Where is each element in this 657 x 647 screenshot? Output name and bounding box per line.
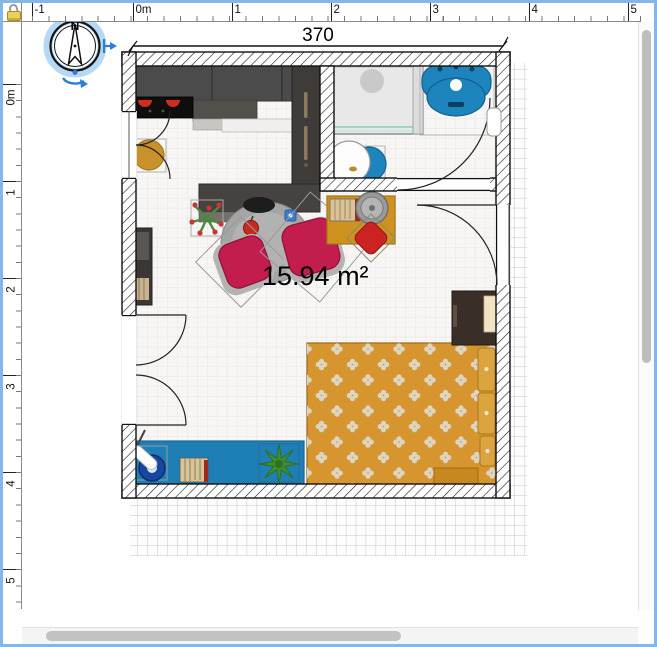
ruler-tick: -1	[32, 3, 34, 21]
ruler-label: 0m	[136, 4, 152, 16]
books	[180, 458, 208, 482]
ruler-tick: 3	[430, 3, 432, 21]
ruler-tick: 1	[3, 181, 21, 183]
ruler-label: 5	[631, 4, 637, 16]
ruler-label: 3	[433, 4, 439, 16]
ruler-label: -1	[35, 4, 45, 16]
ruler-corner	[3, 3, 22, 22]
vertical-scrollbar[interactable]	[638, 22, 654, 610]
ruler-label: 3	[6, 373, 19, 399]
horizontal-scrollbar[interactable]	[22, 627, 642, 644]
bedside-cabinet[interactable]	[452, 291, 497, 345]
ruler-tick: 2	[331, 3, 333, 21]
ruler-tick: 5	[628, 3, 630, 21]
double-bed[interactable]	[307, 343, 497, 488]
ruler-label: 1	[235, 4, 241, 16]
ruler-vertical: 0m 1 2 3 4 5	[3, 22, 22, 609]
ruler-tick: 4	[3, 472, 21, 474]
dimension-label: 370	[302, 25, 334, 46]
ruler-label: 2	[6, 276, 19, 302]
area-label[interactable]: 15.94 m²	[262, 261, 369, 291]
grill	[356, 192, 388, 224]
ruler-label: 4	[6, 470, 19, 496]
vertical-scrollbar-thumb[interactable]	[642, 30, 651, 363]
ruler-tick: 2	[3, 278, 21, 280]
wall-bathroom-vertical	[320, 66, 334, 191]
ruler-tick: 1	[232, 3, 234, 21]
wall-niche[interactable]	[487, 108, 501, 136]
ruler-label: 2	[334, 4, 340, 16]
plan-canvas[interactable]: 370 15.94 m² N	[22, 22, 642, 610]
ruler-tick: 0m	[3, 84, 21, 86]
ruler-tick: 3	[3, 375, 21, 377]
plan-editor-window: -1 0m 1 2 3 4 5 0m 1 2 3 4 5	[0, 0, 657, 647]
bowl[interactable]	[243, 197, 275, 213]
ruler-label: 1	[6, 179, 19, 205]
wall-bottom	[122, 484, 510, 498]
cooktop[interactable]	[135, 97, 193, 118]
ruler-label: 5	[6, 567, 19, 593]
houseplant	[259, 444, 299, 484]
wall-top	[122, 52, 510, 66]
kitchen-wall-cabinets[interactable]	[136, 64, 314, 101]
ruler-label: 0m	[6, 84, 19, 110]
shower[interactable]	[327, 64, 423, 134]
ruler-tick: 5	[3, 569, 21, 571]
compass[interactable]: N	[48, 22, 117, 88]
horizontal-scrollbar-thumb[interactable]	[46, 631, 401, 641]
scrollbar-corner	[638, 627, 654, 644]
refrigerator[interactable]	[292, 66, 320, 192]
pillows	[478, 348, 495, 466]
ruler-horizontal: -1 0m 1 2 3 4 5	[22, 3, 641, 22]
ruler-tick: 0m	[133, 3, 135, 21]
ruler-label: 4	[532, 4, 538, 16]
ruler-tick: 4	[529, 3, 531, 21]
